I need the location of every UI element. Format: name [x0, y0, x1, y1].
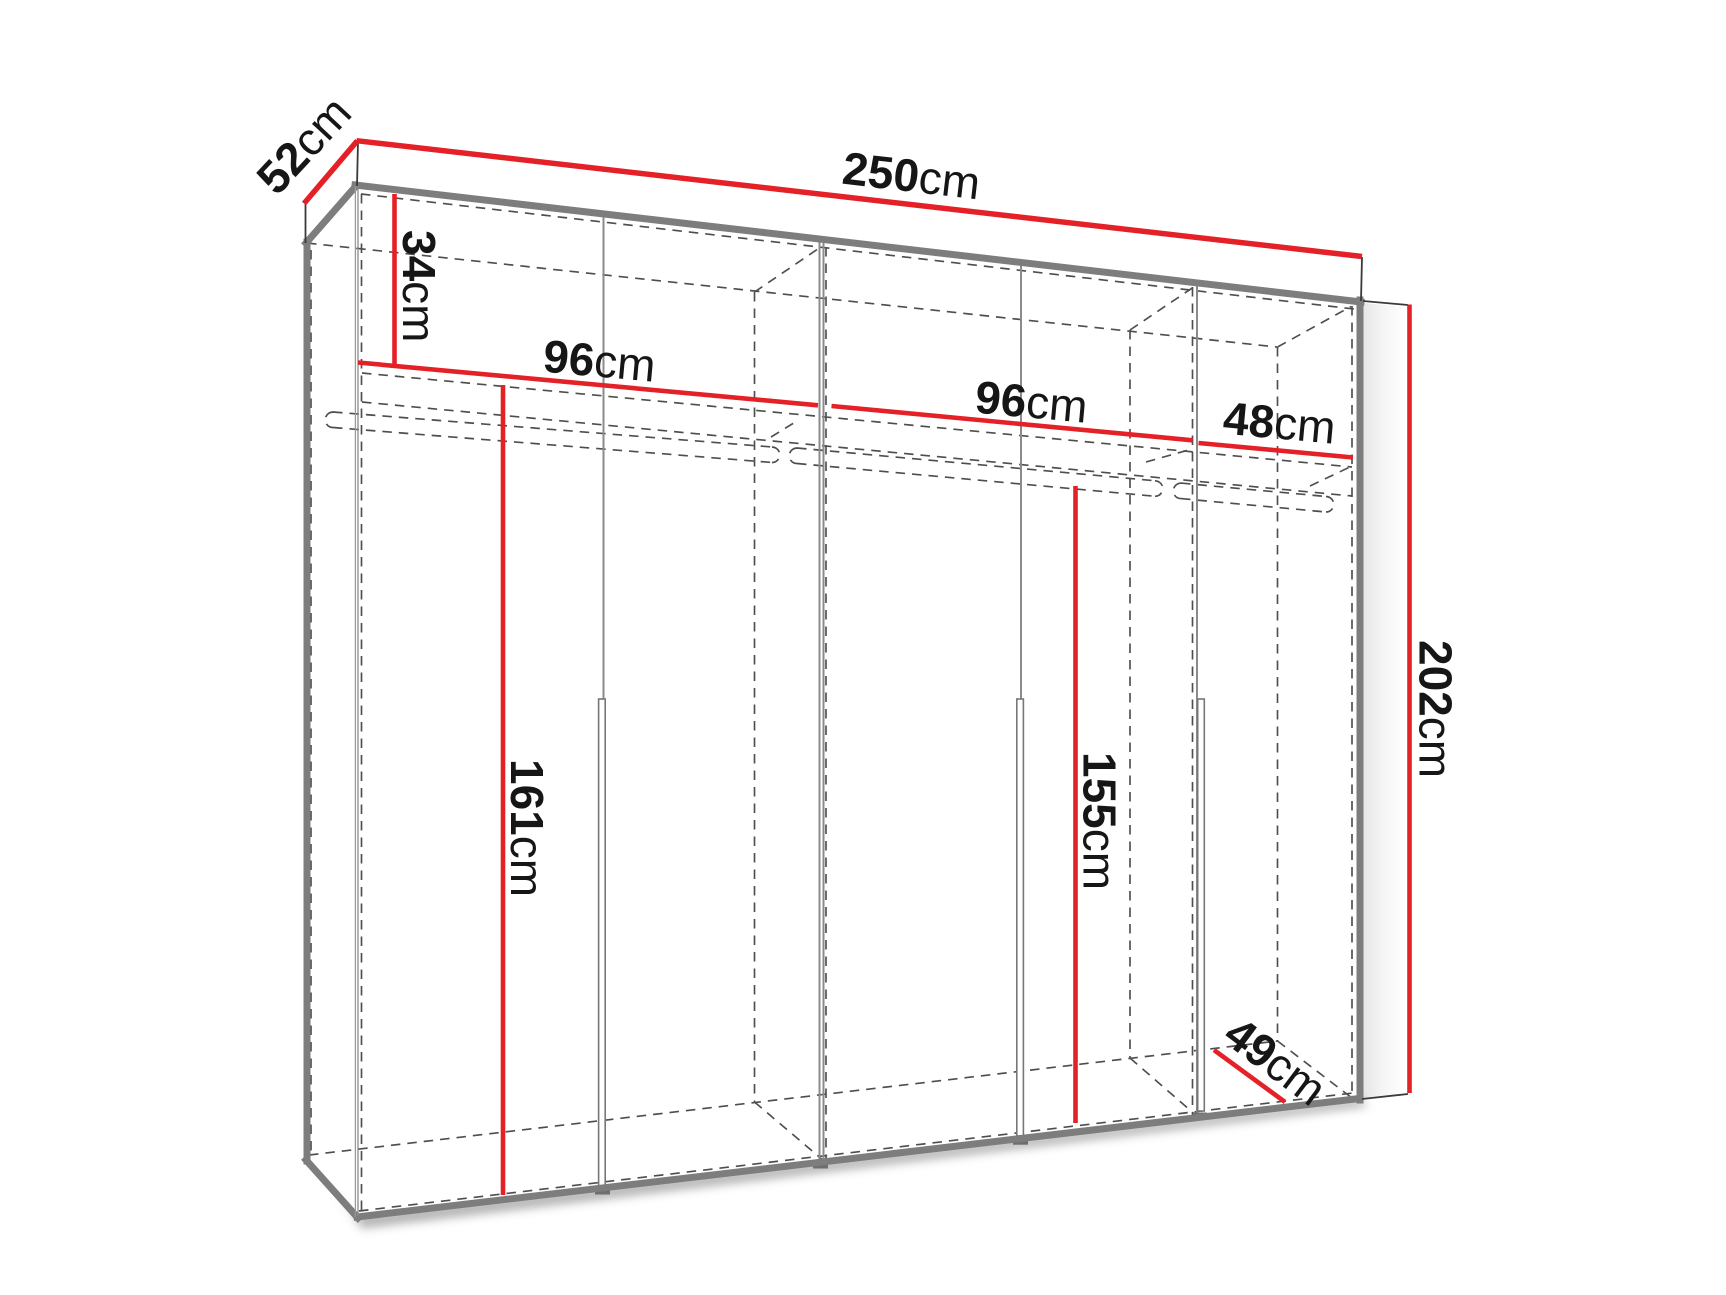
- svg-text:155cm: 155cm: [1074, 752, 1126, 890]
- svg-text:34cm: 34cm: [393, 230, 445, 343]
- svg-text:48cm: 48cm: [1221, 392, 1338, 454]
- svg-text:202cm: 202cm: [1410, 640, 1462, 778]
- svg-text:52cm: 52cm: [246, 86, 361, 204]
- svg-text:96cm: 96cm: [973, 371, 1090, 433]
- svg-text:161cm: 161cm: [501, 759, 553, 897]
- svg-text:96cm: 96cm: [541, 330, 658, 392]
